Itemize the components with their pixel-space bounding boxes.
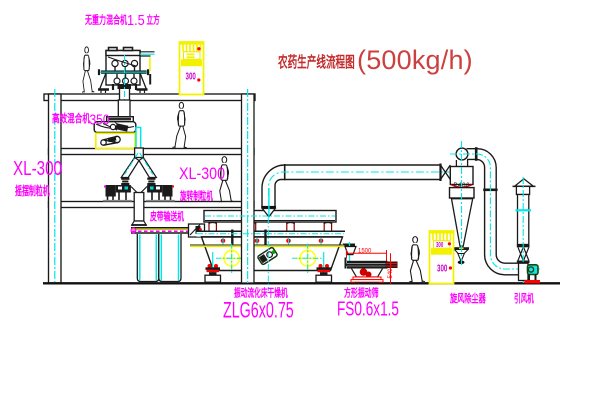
svg-text:540: 540 <box>388 268 394 279</box>
svg-text:旋转制粒机: 旋转制粒机 <box>179 189 213 202</box>
svg-text:摇摆制粒机: 摇摆制粒机 <box>15 183 50 199</box>
svg-text:高效混合机: 高效混合机 <box>52 112 90 126</box>
svg-text:XL-300: XL-300 <box>13 157 62 180</box>
svg-text:无重力混合机: 无重力混合机 <box>84 13 128 26</box>
svg-text:旋风除尘器: 旋风除尘器 <box>449 291 486 304</box>
svg-text:XL-300: XL-300 <box>179 165 225 183</box>
svg-text:ZLG6x0.75: ZLG6x0.75 <box>223 297 294 322</box>
svg-text:1500: 1500 <box>358 249 372 255</box>
svg-text:300: 300 <box>437 262 448 274</box>
svg-text:350: 350 <box>90 111 110 128</box>
svg-text:(500kg/h): (500kg/h) <box>357 45 473 75</box>
svg-text:引风机: 引风机 <box>514 291 534 304</box>
svg-text:300: 300 <box>186 70 197 82</box>
svg-text:1.5: 1.5 <box>127 11 145 28</box>
svg-text:立方: 立方 <box>147 13 160 26</box>
svg-text:皮带输送机: 皮带输送机 <box>149 209 184 222</box>
svg-text:农药生产线流程图: 农药生产线流程图 <box>277 53 354 71</box>
svg-text:FS0.6x1.5: FS0.6x1.5 <box>337 298 399 320</box>
svg-text:方形振动筛: 方形振动筛 <box>344 286 379 299</box>
